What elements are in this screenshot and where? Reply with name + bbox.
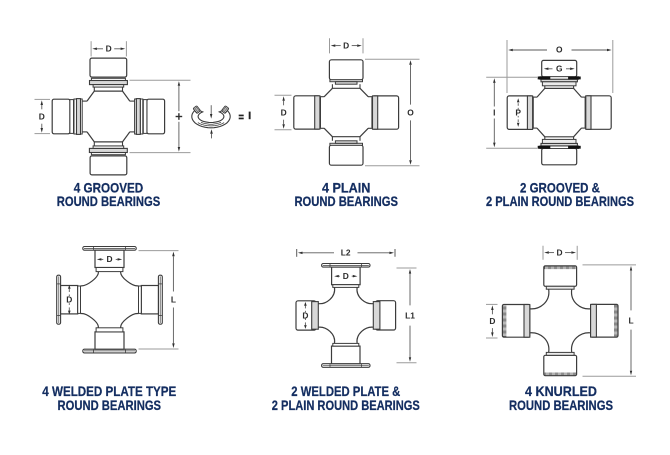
svg-text:D: D: [489, 316, 495, 326]
svg-text:O: O: [556, 45, 563, 55]
svg-text:O: O: [407, 107, 414, 117]
svg-text:2 PLAIN ROUND BEARINGS: 2 PLAIN ROUND BEARINGS: [272, 398, 420, 413]
svg-text:I: I: [493, 107, 495, 117]
svg-text:L: L: [171, 294, 176, 304]
svg-text:D: D: [302, 310, 308, 320]
svg-text:G: G: [556, 64, 563, 74]
svg-text:ROUND BEARINGS: ROUND BEARINGS: [294, 194, 398, 209]
svg-text:2 PLAIN ROUND BEARINGS: 2 PLAIN ROUND BEARINGS: [486, 194, 634, 209]
svg-text:L: L: [628, 316, 633, 326]
svg-text:D: D: [556, 247, 562, 257]
svg-text:D: D: [66, 294, 72, 304]
svg-text:D: D: [343, 271, 349, 281]
svg-text:D: D: [106, 254, 112, 264]
svg-text:D: D: [343, 40, 349, 50]
svg-text:P: P: [515, 107, 521, 117]
svg-text:ROUND BEARINGS: ROUND BEARINGS: [509, 398, 613, 413]
svg-text:4 KNURLED: 4 KNURLED: [525, 384, 597, 399]
svg-text:D: D: [39, 111, 45, 121]
svg-text:L2: L2: [341, 248, 351, 258]
svg-text:ROUND BEARINGS: ROUND BEARINGS: [57, 194, 161, 209]
svg-text:4 WELDED PLATE TYPE: 4 WELDED PLATE TYPE: [42, 384, 176, 399]
svg-text:L1: L1: [405, 310, 415, 320]
svg-text:D: D: [281, 107, 287, 117]
svg-text:ROUND BEARINGS: ROUND BEARINGS: [58, 398, 162, 413]
svg-text:D: D: [106, 44, 112, 54]
svg-text:2 WELDED PLATE &: 2 WELDED PLATE &: [291, 384, 400, 399]
